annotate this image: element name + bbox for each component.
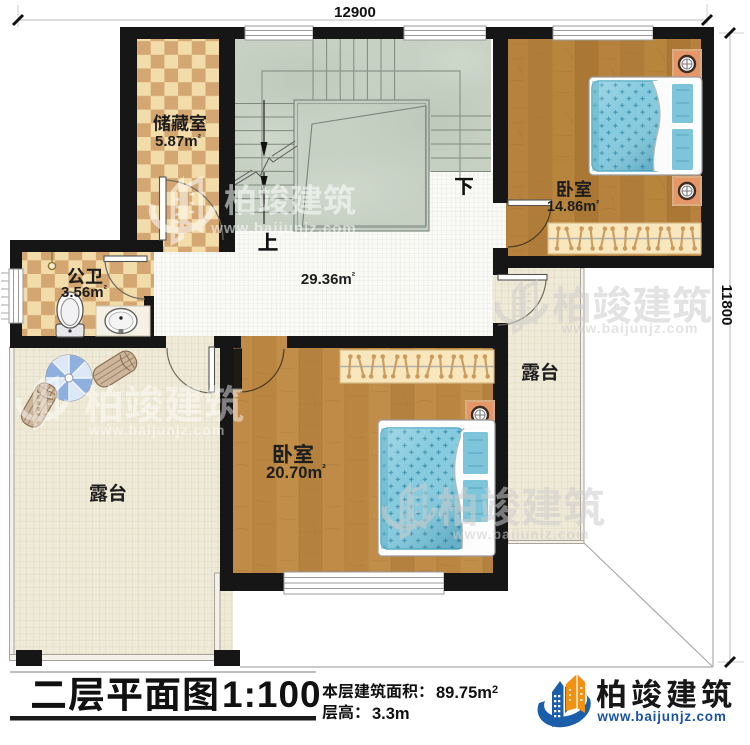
svg-text:www.baijunjz.com: www.baijunjz.com [561, 320, 699, 336]
svg-text:12900: 12900 [334, 4, 376, 21]
svg-text:1:100: 1:100 [222, 674, 322, 715]
svg-text:29.36m²: 29.36m² [301, 271, 356, 288]
svg-text:89.75m2: 89.75m2 [436, 684, 498, 702]
svg-text:www.baijunjz.com: www.baijunjz.com [210, 220, 356, 237]
svg-text:www.baijunjz.com: www.baijunjz.com [88, 422, 226, 438]
svg-text:14.86m²: 14.86m² [547, 198, 599, 215]
svg-text:3.3m: 3.3m [372, 705, 410, 723]
svg-text:5.87m²: 5.87m² [155, 133, 202, 150]
svg-text:www.baijunjz.com: www.baijunjz.com [596, 709, 726, 724]
svg-text:www.baijunjz.com: www.baijunjz.com [452, 526, 590, 542]
svg-text:20.70m²: 20.70m² [266, 463, 326, 482]
svg-text:11800: 11800 [718, 285, 735, 326]
svg-text:3.56m²: 3.56m² [61, 284, 108, 301]
